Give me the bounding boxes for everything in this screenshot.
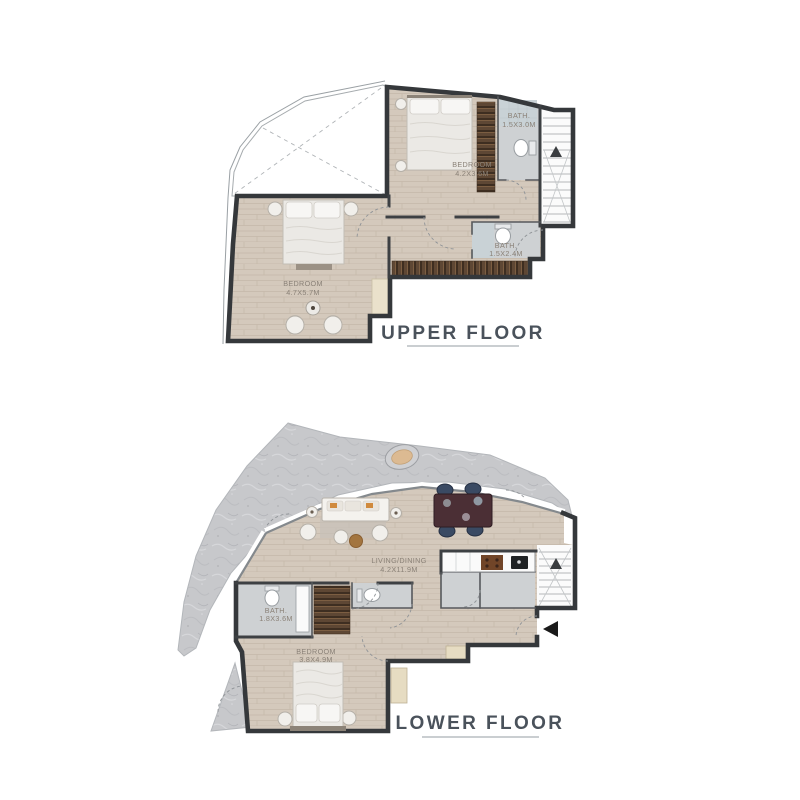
lower-bath-toilet [265,586,279,606]
kitchen-floor [441,572,535,608]
upper-corridor-wardrobe [392,261,528,276]
lower-ledge-b [391,668,407,703]
svg-text:BEDROOM: BEDROOM [283,279,323,288]
floorplan-image: BATH. 1.5X3.0M BEDROOM 4.2X3.6M BATH. 1.… [0,0,800,800]
upper-bedroom-wardrobe [477,102,495,192]
upper-bath-top-toilet [514,140,536,157]
lower-wardrobe [314,586,350,634]
room-label-lower-bedroom: BEDROOM 3.8X4.9M [296,647,336,664]
floorplan-page: BATH. 1.5X3.0M BEDROOM 4.2X3.6M BATH. 1.… [0,0,800,800]
kitchen [441,552,535,608]
svg-text:LIVING/DINING: LIVING/DINING [371,556,426,565]
upper-stairs-icon [540,108,573,226]
svg-text:LOWER FLOOR: LOWER FLOOR [396,713,565,734]
svg-text:BEDROOM: BEDROOM [452,160,492,169]
upper-terrace [232,85,387,196]
svg-text:1.5X2.4M: 1.5X2.4M [489,249,523,258]
room-label-bedroom-main: BEDROOM 4.7X5.7M [283,279,323,297]
upper-floor-plan: BATH. 1.5X3.0M BEDROOM 4.2X3.6M BATH. 1.… [223,81,573,346]
room-label-bedroom-top: BEDROOM 4.2X3.6M [452,160,492,178]
svg-text:4.2X11.9M: 4.2X11.9M [380,565,417,574]
svg-text:4.7X5.7M: 4.7X5.7M [286,288,320,297]
svg-text:1.5X3.0M: 1.5X3.0M [502,120,536,129]
cooktop-icon [481,555,503,570]
svg-text:4.2X3.6M: 4.2X3.6M [455,169,489,178]
svg-text:1.8X3.6M: 1.8X3.6M [259,614,293,623]
svg-text:BATH.: BATH. [508,111,530,120]
lower-floor-plan: LIVING/DINING 4.2X11.9M BATH. 1.8X3.6M B… [178,423,575,737]
lower-ledge-a [446,646,466,659]
lower-stairs-icon [537,545,573,608]
lower-floor-title: LOWER FLOOR [396,713,565,737]
svg-text:3.8X4.9M: 3.8X4.9M [299,655,333,664]
entry-arrow-icon [543,621,558,637]
lower-bath-vanity [296,586,309,632]
svg-text:UPPER FLOOR: UPPER FLOOR [381,323,545,344]
upper-floor-title: UPPER FLOOR [381,323,545,346]
upper-ledge-panel [372,279,388,314]
